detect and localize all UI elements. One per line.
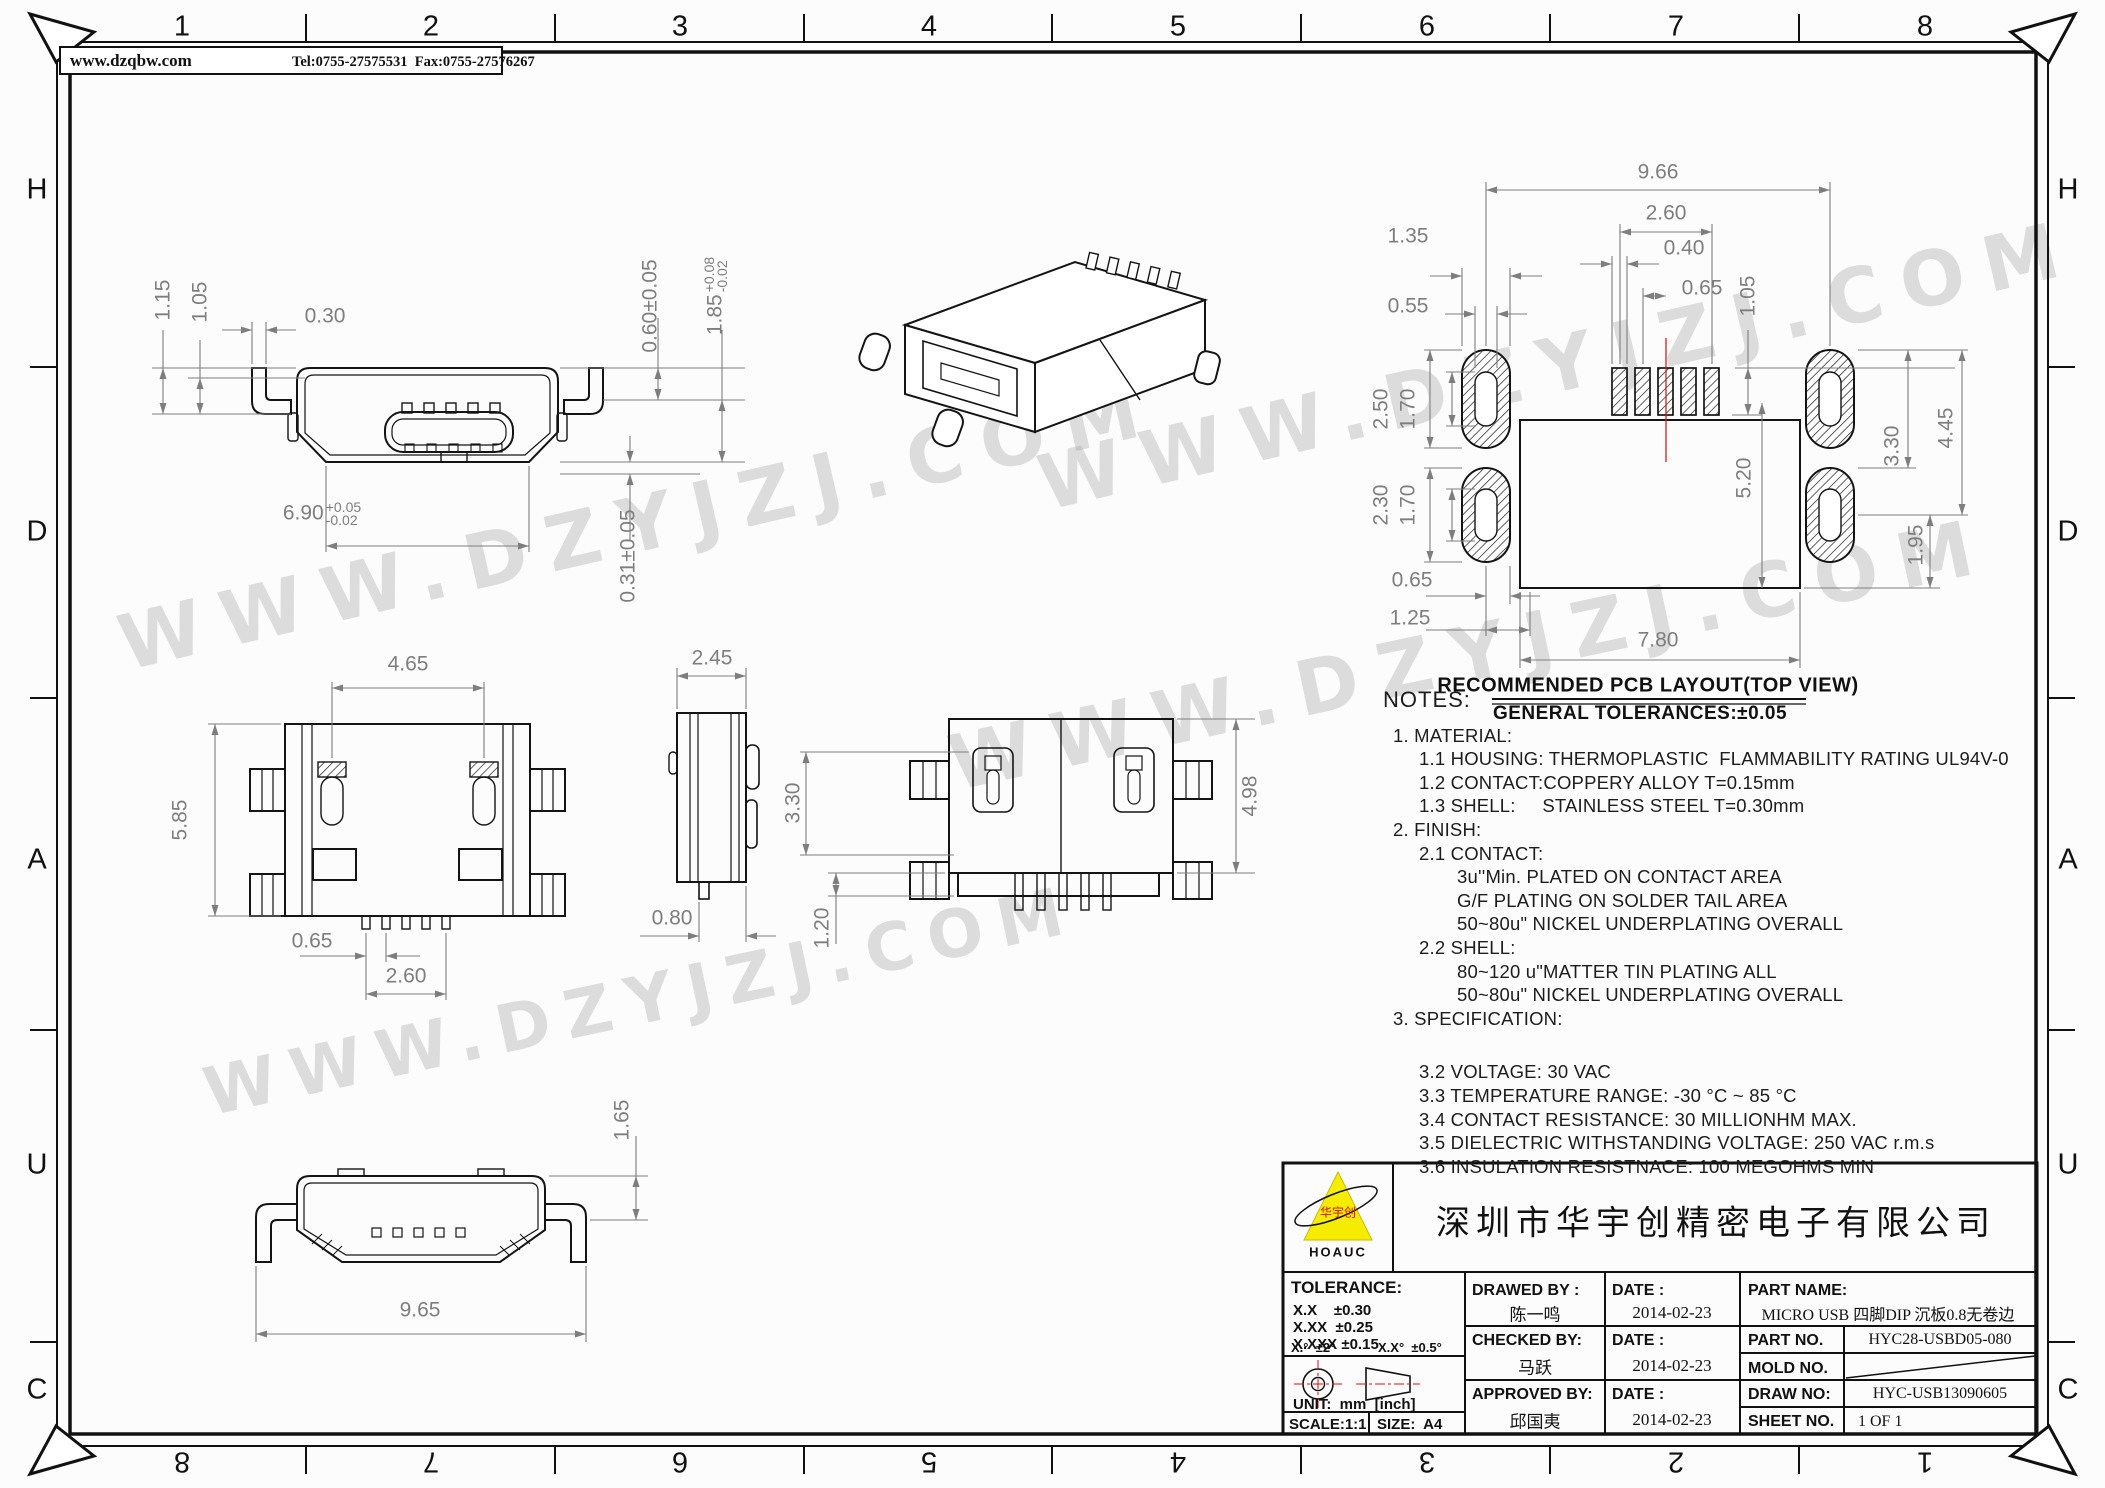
rear-view-drawing <box>256 1169 586 1262</box>
dim-pcb-slot-bottom-hole: 1.70 <box>1398 485 1419 526</box>
drawed-by-name: 陈一鸣 <box>1510 1301 1561 1326</box>
dim-pcb-slot-bottom-height: 2.30 <box>1371 485 1392 526</box>
dim-pcb-pad-width: 0.40 <box>1664 238 1705 259</box>
part-no-value: HYC28-USBD05-080 <box>1868 1331 2011 1349</box>
part-name-value: MICRO USB 四脚DIP 沉板0.8无卷边 <box>1762 1301 2015 1325</box>
zone-letter-right-1: H <box>2058 174 2079 207</box>
draw-no-value: HYC-USB13090605 <box>1873 1385 2007 1403</box>
zone-letter-right-5: C <box>2058 1374 2079 1407</box>
note-line: 2. FINISH: <box>1383 818 2023 842</box>
note-line: 3.4 CONTACT RESISTANCE: 30 MILLIONHM MAX… <box>1383 1108 2023 1132</box>
note-line: 50~80u" NICKEL UNDERPLATING OVERALL <box>1383 912 2023 936</box>
approved-by-label: APPROVED BY: <box>1472 1386 1593 1404</box>
zone-letter-left-2: D <box>27 516 48 549</box>
note-line: 2.2 SHELL: <box>1383 936 2023 960</box>
dim-pcb-slot-gap: 3.30 <box>1882 426 1903 467</box>
zone-letter-left-4: U <box>27 1149 48 1182</box>
dim-front-shell-offset: 0.60±0.05 <box>640 259 661 352</box>
dim-front-ear-width: 0.30 <box>305 306 346 327</box>
dim-pcb-edge-offset-2: 1.25 <box>1390 608 1431 629</box>
top-view-drawing <box>250 724 565 929</box>
note-line: 1.2 CONTACT:COPPERY ALLOY T=0.15mm <box>1383 771 2023 795</box>
zone-letter-left-3: A <box>27 844 46 877</box>
dim-top-latch-span: 4.65 <box>388 654 429 675</box>
note-line: 1.3 SHELL: STAINLESS STEEL T=0.30mm <box>1383 794 2023 818</box>
dim-pcb-slot-width: 1.35 <box>1388 226 1429 247</box>
note-line: 3. SPECIFICATION: <box>1383 1007 2023 1031</box>
dim-rear-width: 9.65 <box>400 1300 441 1321</box>
dim-bottom-body-depth: 4.98 <box>1240 776 1261 817</box>
dim-front-opening-height-tol: +0.08-0.02 <box>703 257 729 292</box>
unit-label: UNIT: mm [inch] <box>1293 1396 1416 1413</box>
note-line: 3.6 INSULATION RESISTNACE: 100 MEGOHMS M… <box>1383 1155 2023 1179</box>
note-line: 80~120 u"MATTER TIN PLATING ALL <box>1383 960 2023 984</box>
bottom-view-dimension-lines <box>800 719 1255 944</box>
zone-number-bottom-2: 2 <box>1668 1445 1684 1478</box>
header-contact: Tel:0755-27575531 Fax:0755-27576267 <box>292 54 535 71</box>
note-line: 1. MATERIAL: <box>1383 724 2023 748</box>
side-view-drawing <box>669 713 759 899</box>
dim-bottom-lip-height: 1.20 <box>812 908 833 949</box>
zone-number-top-6: 6 <box>1419 11 1435 44</box>
zone-number-top-5: 5 <box>1170 11 1186 44</box>
dim-pcb-pad-span: 2.60 <box>1646 203 1687 224</box>
dim-pcb-pad-height: 1.05 <box>1738 276 1759 317</box>
note-blank-line <box>1383 1030 2023 1060</box>
dim-side-pin-offset: 0.80 <box>652 908 693 929</box>
logo-subtext: HOAUC <box>1309 1245 1367 1260</box>
rear-view-dimension-lines <box>256 1136 648 1342</box>
engineering-drawing-page: WWW.DZYJZJ.COM WWW.DZYJZJ.COM WWW.DZYJZJ… <box>0 0 2105 1488</box>
bottom-view-drawing <box>910 719 1212 910</box>
dim-pcb-body-depth: 5.20 <box>1734 458 1755 499</box>
dim-rear-height: 1.65 <box>612 1100 633 1141</box>
zone-number-bottom-6: 6 <box>672 1445 688 1478</box>
part-no-label: PART NO. <box>1748 1332 1823 1350</box>
front-view-drawing <box>252 368 603 462</box>
dim-front-opening-width-tol: +0.05-0.02 <box>326 501 361 527</box>
dim-bottom-latch-offset: 3.30 <box>783 783 804 824</box>
dim-side-width: 2.45 <box>692 648 733 669</box>
logo-text: 华宇创 <box>1320 1204 1356 1221</box>
zone-number-top-2: 2 <box>423 11 439 44</box>
header-site-url: www.dzqbw.com <box>70 51 192 71</box>
zone-letter-right-4: U <box>2058 1149 2079 1182</box>
note-line: 1.1 HOUSING: THERMOPLASTIC FLAMMABILITY … <box>1383 747 2023 771</box>
dim-front-ear-height-1: 1.15 <box>153 280 174 321</box>
iso-view-drawing <box>856 252 1221 449</box>
tolerance-title: TOLERANCE: <box>1291 1278 1402 1298</box>
mold-no-blank-slash <box>1846 1356 2035 1378</box>
zone-number-bottom-8: 8 <box>174 1445 190 1478</box>
zone-letter-right-3: A <box>2058 844 2077 877</box>
zone-number-bottom-5: 5 <box>921 1445 937 1478</box>
dim-front-opening-height-base: 1.85 <box>704 294 727 335</box>
note-line: 50~80u" NICKEL UNDERPLATING OVERALL <box>1383 983 2023 1007</box>
note-line: G/F PLATING ON SOLDER TAIL AREA <box>1383 889 2023 913</box>
dim-pcb-body-width: 7.80 <box>1638 630 1679 651</box>
tolerance-angle-2: X.X° ±0.5° <box>1378 1340 1442 1355</box>
company-name: 深圳市华宇创精密电子有限公司 <box>1436 1196 1996 1245</box>
dim-pcb-slot-span: 9.66 <box>1638 162 1679 183</box>
dim-front-opening-height: 1.85+0.08-0.02 <box>703 257 729 335</box>
dim-pcb-slot-top-height: 2.50 <box>1371 389 1392 430</box>
checked-by-label: CHECKED BY: <box>1472 1332 1582 1350</box>
dim-front-opening-width-base: 6.90 <box>283 502 324 525</box>
date-value-3: 2014-02-23 <box>1632 1410 1711 1430</box>
tolerance-row-1: X.X ±0.30 <box>1293 1302 1371 1319</box>
dim-front-step-height: 0.31±0.05 <box>618 509 639 602</box>
dim-pcb-pad-pitch: 0.65 <box>1682 278 1723 299</box>
zone-number-bottom-4: 4 <box>1170 1445 1186 1478</box>
checked-by-name: 马跃 <box>1518 1354 1552 1379</box>
front-view-dimension-lines <box>152 318 745 552</box>
scale-label: SCALE:1:1 <box>1289 1416 1367 1433</box>
note-line: 3u''Min. PLATED ON CONTACT AREA <box>1383 865 2023 889</box>
size-label: SIZE: A4 <box>1377 1416 1442 1433</box>
zone-number-bottom-3: 3 <box>1419 1445 1435 1478</box>
date-label-2: DATE : <box>1612 1332 1664 1350</box>
zone-number-bottom-7: 7 <box>423 1445 439 1478</box>
tolerance-row-2: X.XX ±0.25 <box>1293 1319 1373 1336</box>
part-name-label: PART NAME: <box>1748 1282 1847 1300</box>
approved-by-name: 邱国夷 <box>1510 1408 1561 1433</box>
date-label-3: DATE : <box>1612 1386 1664 1404</box>
dim-top-pin-span: 2.60 <box>386 966 427 987</box>
sheet-no-label: SHEET NO. <box>1748 1413 1834 1431</box>
dim-top-body-depth: 5.85 <box>170 800 191 841</box>
note-line: 3.3 TEMPERATURE RANGE: -30 °C ~ 85 °C <box>1383 1084 2023 1108</box>
note-line: 3.5 DIELECTRIC WITHSTANDING VOLTAGE: 250… <box>1383 1131 2023 1155</box>
dim-pcb-slot-hole-width: 0.55 <box>1388 296 1429 317</box>
note-line: 2.1 CONTACT: <box>1383 842 2023 866</box>
dim-top-pin-pitch: 0.65 <box>292 931 333 952</box>
side-view-dimension-lines <box>640 668 776 942</box>
tolerance-angle-1: X.° ±2° <box>1291 1340 1335 1355</box>
zone-number-top-8: 8 <box>1917 11 1933 44</box>
dim-pcb-bottom-offset: 1.95 <box>1906 525 1927 566</box>
note-line: 3.2 VOLTAGE: 30 VAC <box>1383 1060 2023 1084</box>
mold-no-label: MOLD NO. <box>1748 1360 1828 1378</box>
date-label-1: DATE : <box>1612 1282 1664 1300</box>
zone-letter-right-2: D <box>2058 516 2079 549</box>
sheet-no-value: 1 OF 1 <box>1858 1413 1902 1431</box>
dim-pcb-slot-total: 4.45 <box>1936 408 1957 449</box>
date-value-1: 2014-02-23 <box>1632 1303 1711 1323</box>
zone-number-top-1: 1 <box>174 11 190 44</box>
top-view-dimension-lines <box>208 682 484 1000</box>
zone-number-top-3: 3 <box>672 11 688 44</box>
drawed-by-label: DRAWED BY : <box>1472 1282 1579 1300</box>
notes-block: NOTES: 1. MATERIAL: 1.1 HOUSING: THERMOP… <box>1383 688 2023 1178</box>
draw-no-label: DRAW NO: <box>1748 1386 1831 1404</box>
zone-letter-left-5: C <box>27 1374 48 1407</box>
dim-front-opening-width: 6.90+0.05-0.02 <box>283 501 361 527</box>
notes-title: NOTES: <box>1383 688 2023 712</box>
dim-pcb-edge-offset: 0.65 <box>1392 570 1433 591</box>
dim-front-ear-height-2: 1.05 <box>190 282 211 323</box>
zone-number-bottom-1: 1 <box>1917 1445 1933 1478</box>
zone-number-top-7: 7 <box>1668 11 1684 44</box>
zone-number-top-4: 4 <box>921 11 937 44</box>
zone-letter-left-1: H <box>27 174 48 207</box>
date-value-2: 2014-02-23 <box>1632 1356 1711 1376</box>
dim-pcb-slot-top-hole: 1.70 <box>1398 389 1419 430</box>
